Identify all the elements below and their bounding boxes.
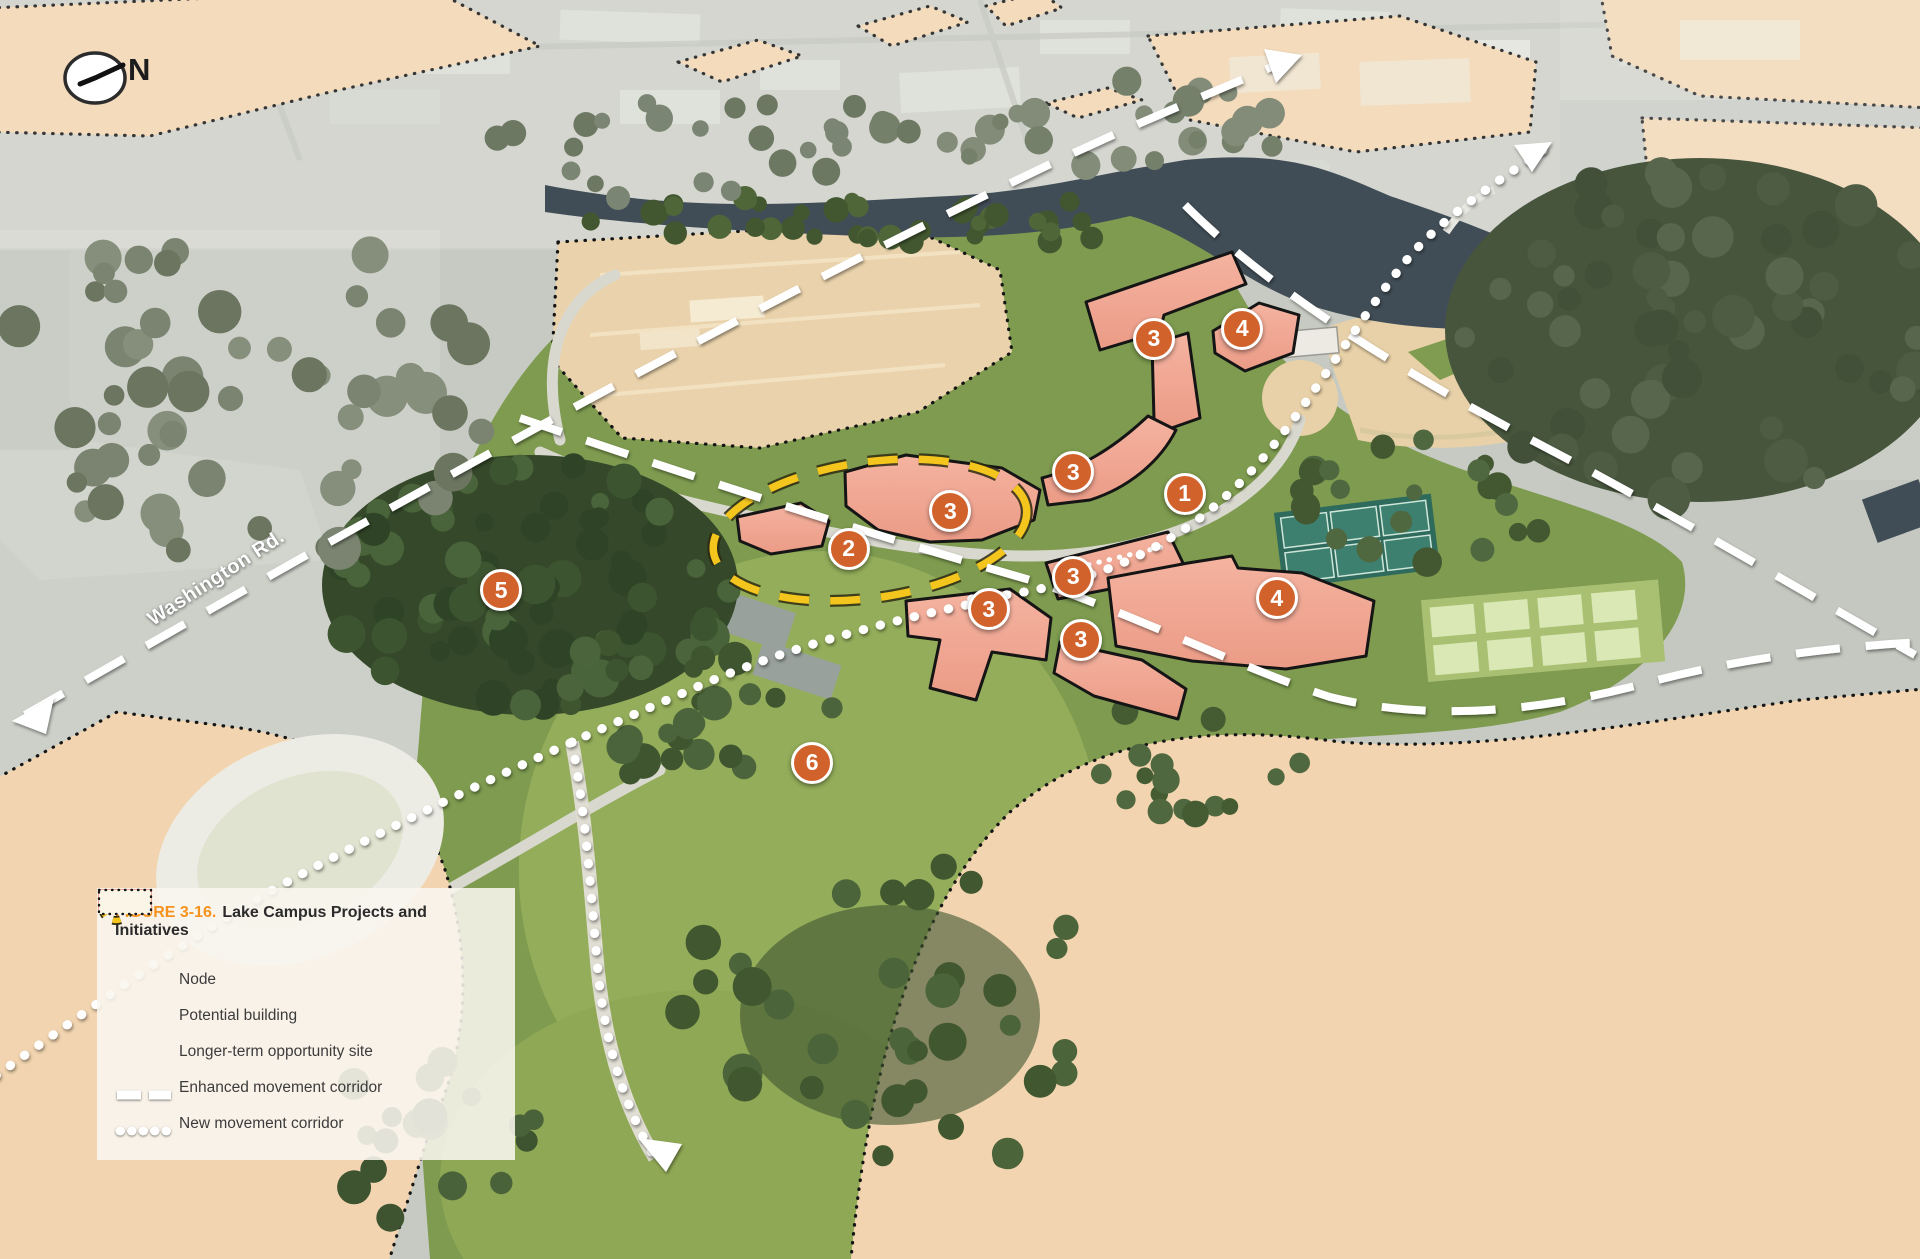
north-compass	[65, 53, 125, 103]
map-marker-3: 3	[1133, 318, 1175, 360]
legend-item-opportunity-site: Longer-term opportunity site	[115, 1034, 497, 1070]
map-marker-6: 6	[791, 742, 833, 784]
campus-map: Washington Rd. N 343132334356 FIGURE 3-1…	[0, 0, 1920, 1259]
map-marker-4: 4	[1256, 577, 1298, 619]
map-marker-5: 5	[480, 569, 522, 611]
legend-label: Enhanced movement corridor	[179, 1079, 382, 1097]
map-marker-3: 3	[1052, 451, 1094, 493]
map-marker-2: 2	[828, 528, 870, 570]
map-marker-3: 3	[1052, 556, 1094, 598]
map-marker-3: 3	[929, 490, 971, 532]
legend-panel: FIGURE 3-16.Lake Campus Projects and Ini…	[97, 888, 515, 1160]
legend-item-enhanced-corridor: Enhanced movement corridor	[115, 1070, 497, 1106]
legend-item-potential-building: Potential building	[115, 998, 497, 1034]
legend-label: Potential building	[179, 1007, 297, 1025]
legend-label: Longer-term opportunity site	[179, 1043, 373, 1061]
map-marker-1: 1	[1164, 473, 1206, 515]
map-marker-4: 4	[1221, 308, 1263, 350]
legend-rows: Node Potential building Longer-term oppo…	[115, 962, 497, 1142]
figure-title: FIGURE 3-16.Lake Campus Projects and Ini…	[115, 904, 497, 940]
legend-label: New movement corridor	[179, 1115, 344, 1133]
map-marker-3: 3	[968, 588, 1010, 630]
legend-label: Node	[179, 971, 216, 989]
legend-item-new-corridor: New movement corridor	[115, 1106, 497, 1142]
legend-item-node: Node	[115, 962, 497, 998]
north-label: N	[128, 52, 150, 88]
map-marker-3: 3	[1060, 619, 1102, 661]
